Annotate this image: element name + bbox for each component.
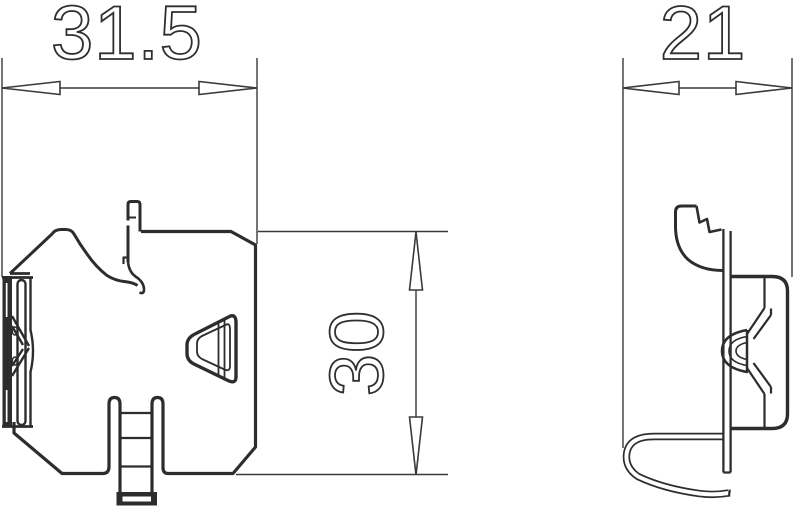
wire-tip	[729, 490, 730, 497]
tab-outline	[128, 202, 140, 263]
hook-notch-edge	[697, 206, 722, 232]
spring-wire	[626, 437, 729, 497]
front-view	[2, 202, 256, 506]
leg-bend-lines	[120, 413, 152, 467]
dim-label-height: 30	[315, 310, 400, 397]
dimension-arrow-up-icon	[410, 232, 423, 290]
body-block	[731, 277, 788, 429]
dimension-arrow-down-icon	[410, 417, 423, 475]
dimension-arrow-right-icon	[736, 82, 792, 95]
punched-tab-front	[187, 316, 236, 382]
dimension-arrow-left-icon	[2, 82, 60, 95]
jaw-edge	[31, 278, 34, 427]
dim-height: 30	[236, 232, 448, 476]
wire-outer	[626, 437, 728, 495]
dim-label-front-width: 31.5	[51, 0, 203, 76]
jaw-bar-highlight	[6, 390, 8, 422]
punched-tab-folds	[219, 320, 225, 379]
body-right-contour	[141, 232, 256, 493]
tab-notch-gap	[126, 221, 130, 226]
jaw-bar-highlight	[6, 283, 8, 317]
serrated-jaw	[2, 274, 33, 428]
body-curl	[128, 262, 144, 293]
dimension-arrow-right-icon	[199, 82, 257, 95]
dimension-arrow-left-icon	[623, 82, 679, 95]
body-block-fill	[731, 277, 788, 429]
top-hook	[676, 206, 724, 271]
technical-drawing-svg: 31.5 21 30	[0, 0, 794, 506]
dim-label-side-width: 21	[660, 0, 747, 76]
leg-foot-slot	[123, 497, 152, 502]
top-tab	[124, 202, 141, 265]
drawing-canvas: 31.5 21 30	[0, 0, 794, 506]
wire-core	[626, 437, 728, 495]
side-view	[626, 206, 787, 497]
